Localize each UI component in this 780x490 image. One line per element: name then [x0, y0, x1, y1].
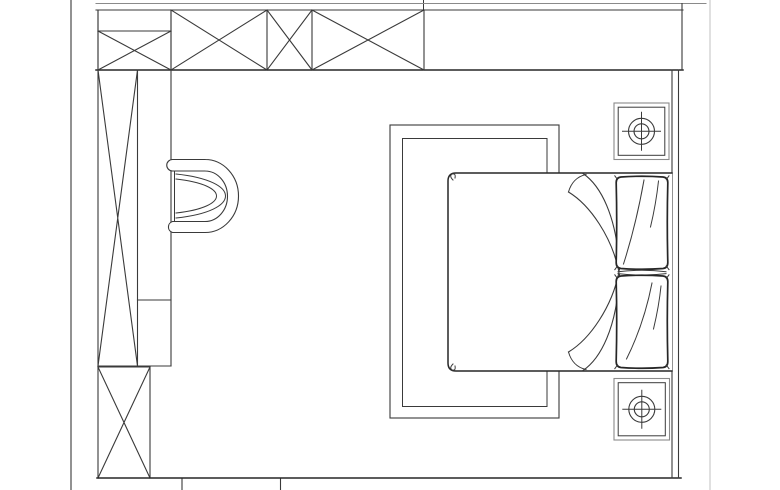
base-cabinet-x [98, 367, 150, 478]
window-x-hatch [98, 10, 424, 70]
nightstand-top [614, 103, 669, 160]
lamp-crosshair-icon [623, 112, 661, 150]
pillow-bottom [615, 275, 669, 369]
floor-plan-canvas [0, 0, 780, 490]
left-wardrobe-column [98, 10, 171, 478]
top-wall-band [96, 4, 706, 71]
band-vertical-edges [98, 4, 682, 71]
armchair-outer-shell [167, 160, 239, 233]
tall-wardrobe-x [98, 70, 138, 366]
pillow-top [615, 176, 669, 270]
lamp-crosshair-icon [623, 390, 661, 428]
armchair [167, 160, 239, 233]
floor-plan-drawing [0, 0, 780, 490]
nightstand-bottom [614, 379, 670, 441]
